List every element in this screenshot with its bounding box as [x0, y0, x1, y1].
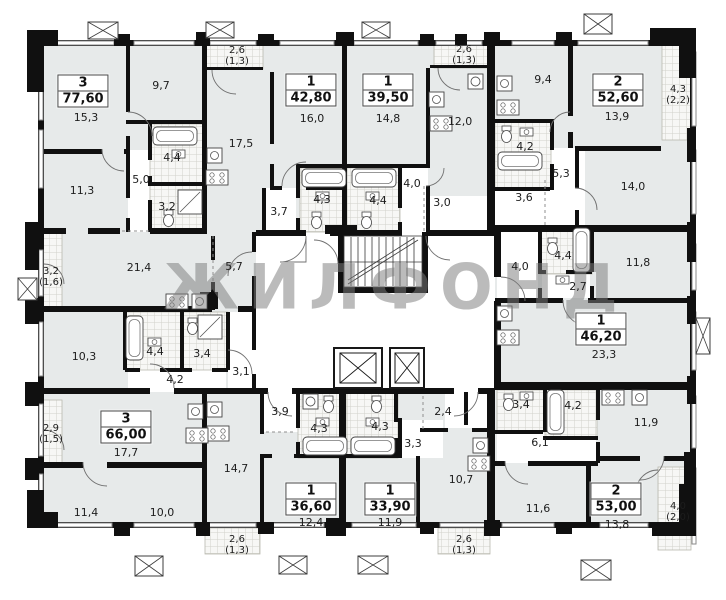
room-area-label: 3,3: [404, 438, 422, 450]
room-area-label: 13,9: [605, 111, 630, 123]
room-area-label: 3,9: [271, 406, 289, 418]
room-area-label: 4,4: [554, 250, 572, 262]
balcony-area-label: 2,9 (1,5): [39, 423, 63, 445]
room-area-label: 23,3: [592, 349, 617, 361]
floor-plan: ЖИЛФОНД 3 77,60 1 42,80 1 39,50 2 52,60 …: [0, 0, 726, 600]
apartment-label-box: 2 53,00: [590, 483, 641, 516]
room-area-label: 16,0: [300, 113, 325, 125]
balcony-area: 4,3: [666, 84, 690, 95]
apartment-total-area: 42,80: [286, 91, 335, 106]
room-area-label: 3,6: [515, 192, 533, 204]
room-area-label: 4,0: [511, 261, 529, 273]
room-area-label: 4,0: [403, 178, 421, 190]
apartment-label-box: 1 36,60: [285, 483, 336, 516]
room-area-label: 4,3: [313, 194, 331, 206]
balcony-area-label: 2,6 (1,3): [452, 44, 476, 66]
room-area-label: 14,0: [621, 181, 646, 193]
apartment-rooms-count: 2: [593, 75, 642, 91]
apartment-rooms-count: 1: [365, 484, 414, 500]
room-area-label: 11,4: [74, 507, 99, 519]
room-area-label: 12,0: [448, 116, 473, 128]
balcony-counted-area: (1,6): [39, 277, 63, 288]
apartment-total-area: 36,60: [286, 500, 335, 515]
apartment-total-area: 33,90: [365, 500, 414, 515]
balcony-counted-area: (1,5): [39, 434, 63, 445]
balcony-counted-area: (2,0): [666, 512, 690, 523]
apartment-rooms-count: 1: [363, 75, 412, 91]
room-area-label: 4,3: [371, 421, 389, 433]
room-area-label: 5,0: [132, 174, 150, 186]
apartment-rooms-count: 1: [576, 314, 625, 330]
room-area-label: 2,7: [569, 281, 587, 293]
room-area-label: 3,2: [158, 201, 176, 213]
apartment-total-area: 39,50: [363, 91, 412, 106]
balcony-counted-area: (2,2): [666, 95, 690, 106]
balcony-area: 2,6: [225, 534, 249, 545]
stairs: [344, 236, 422, 287]
apartment-total-area: 46,20: [576, 330, 625, 345]
balcony-area-label: 3,2 (1,6): [39, 266, 63, 288]
apartment-label-box: 3 66,00: [100, 411, 151, 444]
room-area-label: 17,7: [114, 447, 139, 459]
room-area-label: 3,1: [232, 366, 250, 378]
room-area-label: 10,3: [72, 351, 97, 363]
room-area-label: 11,9: [378, 517, 403, 529]
balcony-area: 3,2: [39, 266, 63, 277]
room-area-label: 21,4: [127, 262, 152, 274]
room-area-label: 6,1: [531, 437, 549, 449]
apartment-rooms-count: 3: [101, 412, 150, 428]
balcony-area: 2,6: [452, 44, 476, 55]
room-area-label: 4,4: [369, 195, 387, 207]
balcony-area-label: 2,6 (1,3): [225, 45, 249, 67]
room-area-label: 10,0: [150, 507, 175, 519]
room-area-label: 5,7: [225, 261, 243, 273]
apartment-rooms-count: 1: [286, 75, 335, 91]
balcony-area-label: 4,3 (2,2): [666, 84, 690, 106]
balcony-counted-area: (1,3): [225, 56, 249, 67]
room-area-label: 14,7: [224, 463, 249, 475]
room-area-label: 3,7: [270, 206, 288, 218]
room-area-label: 3,4: [512, 399, 530, 411]
balcony-area: 2,9: [39, 423, 63, 434]
balcony-area: 2,6: [225, 45, 249, 56]
apartment-label-box: 1 46,20: [575, 313, 626, 346]
apartment-total-area: 77,60: [58, 92, 107, 107]
room-area-label: 15,3: [74, 112, 99, 124]
balcony-area-label: 2,6 (1,3): [452, 534, 476, 556]
room-area-label: 14,8: [376, 113, 401, 125]
room-area-label: 2,4: [434, 406, 452, 418]
apartment-total-area: 66,00: [101, 428, 150, 443]
room-area-label: 13,8: [605, 519, 630, 531]
balcony-counted-area: (1,3): [452, 55, 476, 66]
room-area-label: 4,2: [166, 374, 184, 386]
elevators: [334, 348, 424, 388]
apartment-label-box: 1 33,90: [364, 483, 415, 516]
apartment-label-box: 3 77,60: [57, 75, 108, 108]
room-area-label: 4,2: [564, 400, 582, 412]
apartment-total-area: 53,00: [591, 500, 640, 515]
balcony-area-label: 2,6 (1,3): [225, 534, 249, 556]
room-area-label: 12,4: [299, 517, 324, 529]
apartment-rooms-count: 2: [591, 484, 640, 500]
apartment-rooms-count: 3: [58, 76, 107, 92]
apartment-total-area: 52,60: [593, 91, 642, 106]
balcony-counted-area: (1,3): [452, 545, 476, 556]
balcony-counted-area: (1,3): [225, 545, 249, 556]
room-area-label: 9,7: [152, 80, 170, 92]
apartment-label-box: 1 42,80: [285, 74, 336, 107]
apartment-rooms-count: 1: [286, 484, 335, 500]
room-area-label: 4,4: [163, 152, 181, 164]
room-area-label: 11,6: [526, 503, 551, 515]
room-area-label: 4,2: [516, 141, 534, 153]
room-area-label: 4,4: [146, 346, 164, 358]
apartment-label-box: 1 39,50: [362, 74, 413, 107]
balcony-area: 2,6: [452, 534, 476, 545]
apartment-label-box: 2 52,60: [592, 74, 643, 107]
room-area-label: 10,7: [449, 474, 474, 486]
balcony-area: 4,0: [666, 501, 690, 512]
room-area-label: 11,3: [70, 185, 95, 197]
room-area-label: 11,9: [634, 417, 659, 429]
balcony-area-label: 4,0 (2,0): [666, 501, 690, 523]
room-area-label: 3,4: [193, 348, 211, 360]
room-area-label: 9,4: [534, 74, 552, 86]
room-area-label: 11,8: [626, 257, 651, 269]
room-area-label: 4,3: [310, 423, 328, 435]
room-area-label: 17,5: [229, 138, 254, 150]
room-area-label: 3,0: [433, 197, 451, 209]
room-area-label: 5,3: [552, 168, 570, 180]
